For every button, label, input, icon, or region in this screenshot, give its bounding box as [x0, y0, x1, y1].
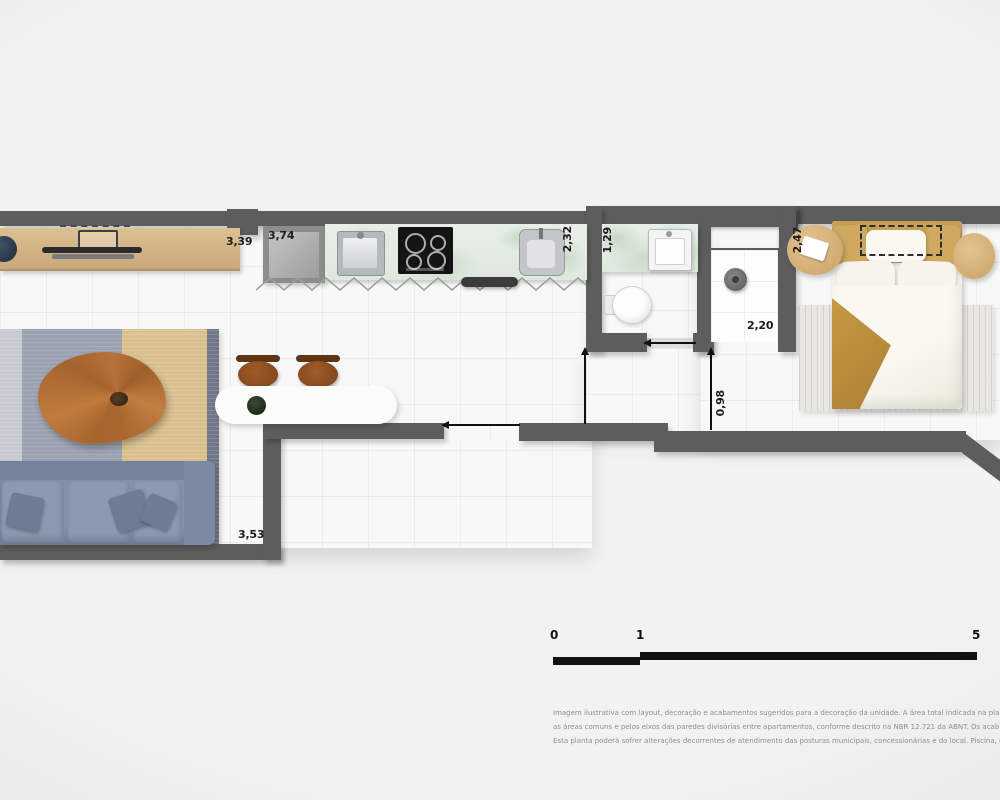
table-bowl-icon [247, 396, 266, 415]
hall-door-arrow-icon [581, 347, 589, 355]
coffee-table-knot [110, 392, 128, 406]
bar-stool [234, 355, 282, 389]
disclaimer-line: Imagem ilustrativa com layout, decoração… [553, 706, 1000, 720]
cooktop-controls [406, 268, 444, 271]
bathroom-door-arrow-icon [643, 339, 651, 347]
sofa-backrest [0, 461, 215, 480]
bar-stool [294, 355, 342, 389]
bedroom-door-arrow-icon [707, 347, 715, 355]
dimension-living-top: 3,39 [226, 235, 252, 248]
scale-tick-5: 5 [972, 628, 980, 642]
faucet-icon [666, 231, 672, 237]
disclaimer-line: Esta planta poderá sofrer alterações dec… [553, 734, 1000, 748]
wall-bottom-living [0, 544, 281, 560]
toilet-bowl [612, 286, 652, 324]
bathroom-sink-icon [648, 229, 692, 271]
floor-entrance-threshold [444, 424, 520, 439]
shower-niche [711, 227, 779, 248]
dimension-kitchen-top: 3,74 [268, 229, 294, 242]
laundry-tank-icon [519, 229, 565, 276]
dimension-kitchen-side: 2,32 [561, 226, 574, 252]
wall-shelf [461, 277, 518, 287]
tv-base [52, 254, 134, 259]
burner [405, 233, 426, 254]
floor-plan-canvas: 3,39 3,74 2,32 1,29 2,47 2,20 0,98 3,53 … [0, 0, 1000, 800]
sofa [0, 461, 215, 545]
dimension-bathroom-side: 1,29 [601, 227, 614, 253]
bed [832, 221, 962, 409]
tv-icon [28, 222, 153, 262]
scale-bar: 0 1 5 [548, 628, 984, 668]
disclaimer-line: as áreas comuns e pelos eixos das parede… [553, 720, 1000, 734]
scale-tick-1: 1 [636, 628, 644, 642]
floor-hall [586, 348, 718, 432]
coffee-table [38, 352, 166, 444]
kitchen-sink-icon [337, 231, 385, 276]
burner [430, 235, 446, 251]
sofa-pillow [5, 492, 45, 532]
wall-bathroom-bottom-left [586, 333, 647, 352]
cooktop-icon [398, 227, 453, 274]
tank-basin [527, 240, 555, 268]
wall-south-kitchen [263, 423, 444, 439]
overhead-cabinet-dashed [860, 225, 942, 256]
scale-tick-0: 0 [550, 628, 558, 642]
entrance-door-arrow-icon [441, 421, 449, 429]
dimension-shower: 2,20 [747, 319, 773, 332]
shower-head-icon [724, 268, 747, 291]
dining-table [215, 386, 397, 424]
wall-south-hall [519, 423, 668, 441]
stool-seat [238, 361, 278, 388]
bedroom-door-line [710, 352, 712, 430]
counter-edge-zigzag [256, 274, 588, 298]
nightstand-right [953, 233, 995, 279]
hall-door-line [584, 352, 586, 424]
toilet-icon [604, 285, 650, 323]
dimension-bedroom-door: 0,98 [714, 390, 727, 416]
tv-screen [42, 247, 142, 253]
tv-mount-dashed [60, 225, 130, 227]
scale-segment-0-1 [553, 657, 640, 665]
entrance-door-line [448, 424, 520, 426]
wall-hall-vertical [263, 423, 281, 560]
sink-basin [343, 238, 377, 268]
wall-bottom-bedroom [654, 431, 966, 452]
scale-segment-1-5 [640, 652, 977, 660]
dimension-living-bottom: 3,53 [238, 528, 264, 541]
sink-basin [655, 238, 685, 265]
faucet-icon [357, 232, 364, 239]
wall-bathroom-left [586, 206, 602, 352]
bathroom-door-line [650, 342, 696, 344]
disclaimer-text: Imagem ilustrativa com layout, decoração… [553, 706, 1000, 748]
stool-seat [298, 361, 338, 388]
dimension-bedroom-side: 2,47 [791, 227, 804, 253]
faucet-icon [539, 228, 543, 239]
sofa-armrest [184, 461, 215, 545]
